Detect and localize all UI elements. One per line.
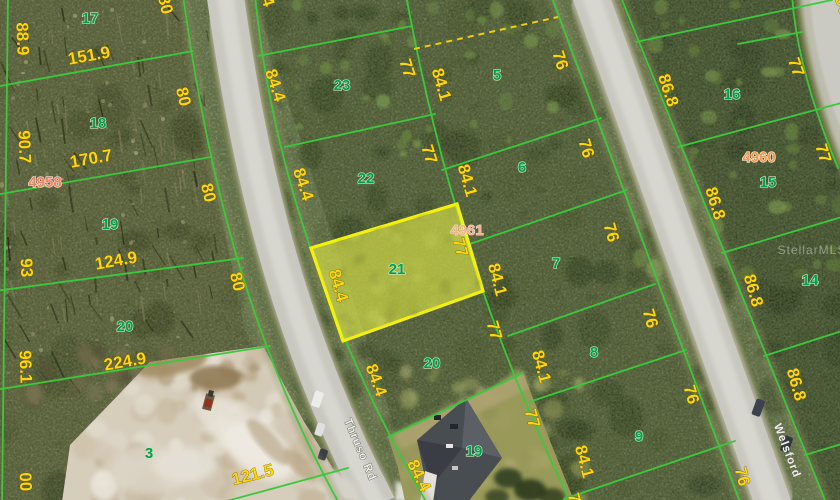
svg-text:20: 20: [424, 355, 441, 372]
svg-text:20: 20: [117, 318, 134, 335]
svg-text:7: 7: [552, 255, 560, 272]
svg-text:22: 22: [358, 170, 375, 187]
svg-text:96.1: 96.1: [15, 350, 35, 384]
svg-text:16: 16: [724, 86, 741, 103]
svg-text:93: 93: [17, 258, 37, 278]
svg-text:88.9: 88.9: [12, 22, 32, 56]
svg-text:14: 14: [802, 272, 819, 289]
svg-text:4958: 4958: [28, 174, 61, 191]
svg-text:90.7: 90.7: [14, 130, 34, 164]
svg-text:15: 15: [760, 174, 777, 191]
svg-text:6: 6: [518, 159, 526, 176]
svg-text:19: 19: [466, 443, 483, 460]
svg-text:23: 23: [334, 77, 351, 94]
svg-text:4961: 4961: [450, 222, 483, 239]
svg-text:19: 19: [102, 216, 119, 233]
svg-text:21: 21: [389, 261, 406, 278]
svg-text:8: 8: [590, 344, 598, 361]
svg-text:StellarMLS: StellarMLS: [778, 243, 840, 257]
svg-text:18: 18: [90, 115, 107, 132]
svg-text:00: 00: [16, 472, 36, 492]
svg-text:5: 5: [493, 67, 501, 84]
svg-text:3: 3: [145, 445, 153, 462]
svg-text:4960: 4960: [742, 149, 775, 166]
svg-text:17: 17: [82, 10, 99, 27]
svg-text:9: 9: [635, 428, 643, 445]
